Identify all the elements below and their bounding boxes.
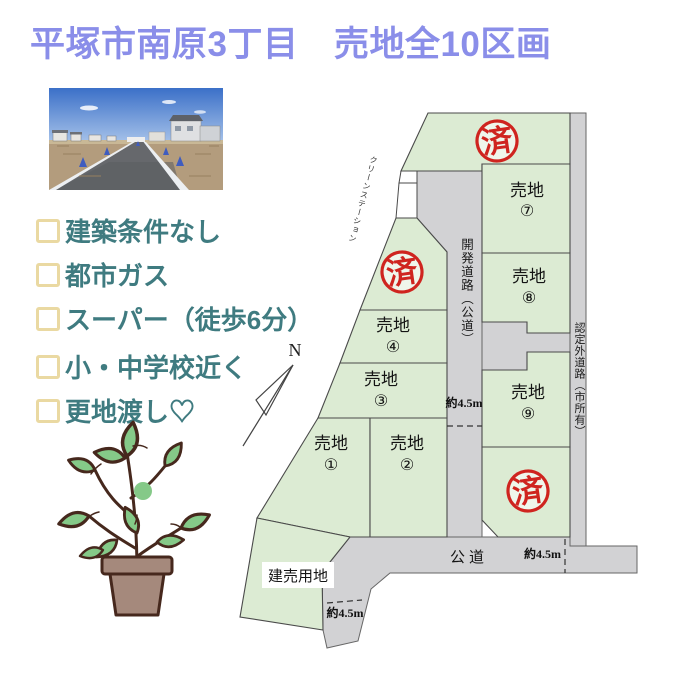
lot8-label: 売地 — [512, 267, 546, 286]
lot2-number: ② — [400, 457, 414, 474]
sold-stamp-char: 済 — [510, 472, 547, 511]
lot1-number: ① — [324, 457, 338, 474]
lot4-number: ④ — [386, 339, 400, 356]
tateuri-label: 建売用地 — [268, 568, 328, 585]
lot9-label: 売地 — [511, 383, 545, 402]
outer-road-label: 認定外道路（市所有） — [571, 322, 587, 437]
lot3-label: 売地 — [364, 370, 398, 389]
clean-station-cell — [396, 183, 417, 218]
dimension-strip: 約4.5m — [327, 605, 364, 620]
dimension-band: 約4.5m — [524, 546, 561, 561]
lot3-number: ③ — [374, 393, 388, 410]
north-arrow — [243, 365, 293, 446]
lot7-label: 売地 — [510, 181, 544, 200]
dimension-road: 約4.5m — [446, 395, 483, 410]
north-label: N — [289, 340, 302, 360]
sold-stamp-char: 済 — [479, 122, 516, 161]
lot7-number: ⑦ — [520, 203, 534, 220]
lot8-number: ⑧ — [522, 290, 536, 307]
sold-stamp-char: 済 — [384, 253, 421, 292]
flyer-page: { "title": "平塚市南原3丁目 売地全10区画", "checklis… — [0, 0, 684, 679]
clean-station-cell — [399, 171, 417, 183]
lot2-label: 売地 — [390, 434, 424, 453]
lot9-number: ⑨ — [521, 406, 535, 423]
lot1-label: 売地 — [314, 434, 348, 453]
public-road-label: 公道 — [450, 549, 488, 566]
lot4-label: 売地 — [376, 316, 410, 335]
development-road-label: 開発道路（公道） — [457, 238, 476, 346]
